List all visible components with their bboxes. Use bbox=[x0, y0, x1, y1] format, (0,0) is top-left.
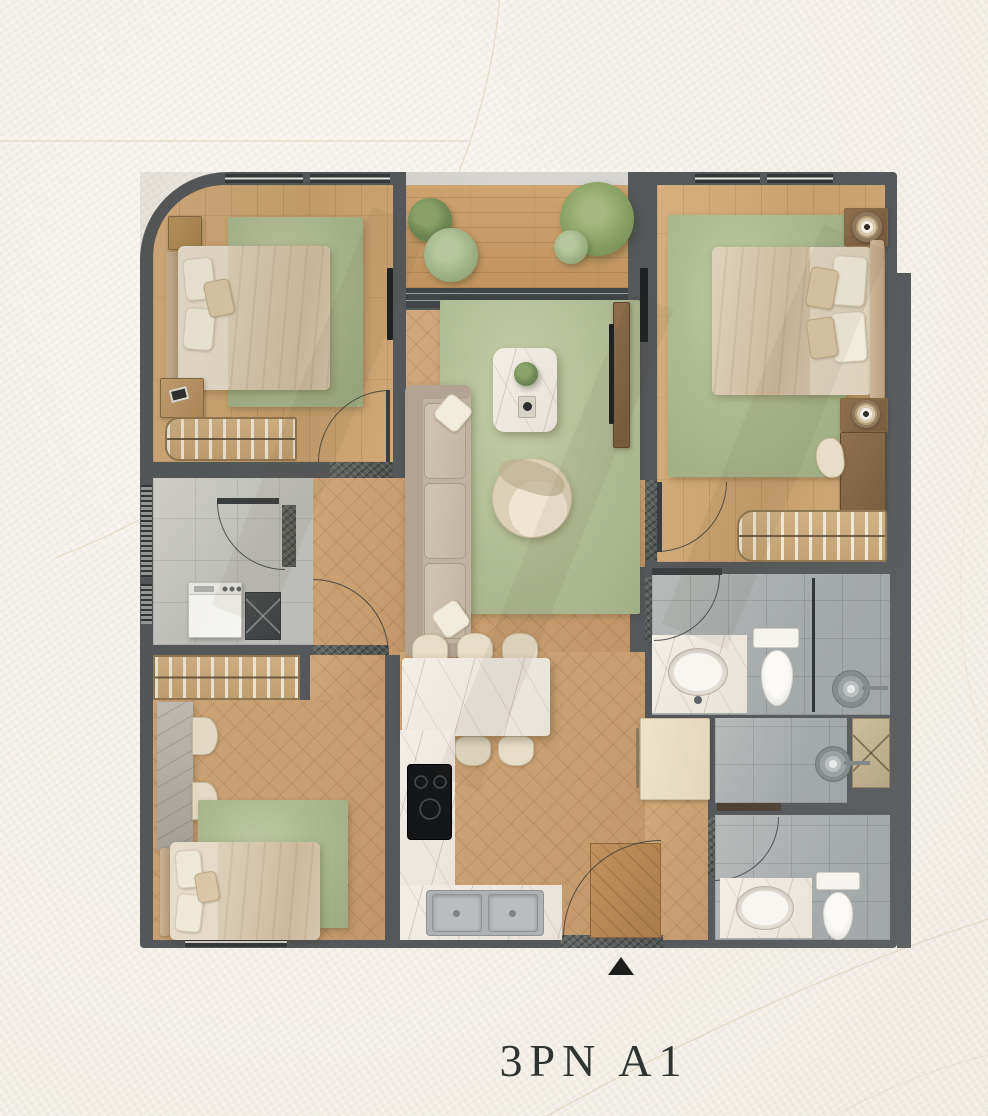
tray-item bbox=[523, 402, 532, 411]
wardrobe-master bbox=[737, 510, 887, 562]
cooktop bbox=[407, 764, 452, 840]
dining-table bbox=[402, 658, 550, 736]
bed-bedroom-2-headboard bbox=[166, 252, 178, 384]
window-bedroom-2-left bbox=[225, 174, 303, 183]
utility-duct-shaft bbox=[245, 592, 281, 640]
sofa-backrest bbox=[405, 385, 423, 657]
bed-bedroom-2-duvet bbox=[228, 246, 330, 390]
refrigerator bbox=[640, 718, 710, 800]
bed-master-headboard bbox=[870, 240, 884, 400]
threshold-bedroom-2 bbox=[330, 462, 393, 478]
tv-master-bedroom bbox=[640, 268, 648, 342]
coffee-table-plant bbox=[514, 362, 538, 386]
louver-window-utility-lower bbox=[141, 584, 152, 624]
threshold-bathroom-2 bbox=[708, 817, 715, 877]
threshold-master-bedroom bbox=[645, 480, 657, 560]
toilet-bathroom-2-tank bbox=[816, 872, 860, 890]
balcony-plant bbox=[424, 228, 478, 282]
dining-chair bbox=[498, 736, 534, 766]
shower-glass-partition bbox=[812, 578, 815, 712]
door-leaf-bathroom-2 bbox=[717, 803, 781, 811]
window-master-right bbox=[767, 174, 833, 183]
entry-direction-arrow-icon bbox=[608, 957, 634, 975]
sofa-armrest-top bbox=[405, 385, 471, 399]
lamp-master-top bbox=[852, 212, 882, 242]
lamp-master-bottom bbox=[852, 400, 880, 428]
threshold-bathroom-1 bbox=[645, 577, 652, 643]
desk-master bbox=[840, 432, 886, 516]
outer-wall-right-step bbox=[897, 273, 911, 948]
wardrobe-bedroom-3 bbox=[153, 655, 300, 700]
tv-living-room bbox=[609, 324, 614, 424]
bed-master-duvet bbox=[712, 247, 810, 395]
sink-bathroom-1 bbox=[668, 648, 728, 696]
faucet-bathroom-1 bbox=[694, 696, 702, 704]
nightstand-bedroom-2 bbox=[168, 216, 202, 250]
window-bedroom-2-right bbox=[310, 174, 390, 183]
tv-console-living bbox=[613, 302, 630, 448]
service-duct-shaft bbox=[852, 718, 890, 788]
sink-drain bbox=[509, 910, 516, 917]
toilet-bathroom-1-tank bbox=[753, 628, 799, 648]
tv-bedroom-2 bbox=[387, 268, 393, 340]
coffee-table bbox=[493, 348, 557, 432]
wardrobe-bedroom-2 bbox=[165, 417, 297, 461]
window-master-left bbox=[695, 174, 760, 183]
floor-plan bbox=[140, 172, 911, 948]
desk-bedroom-3 bbox=[157, 702, 193, 850]
bed-bedroom-3-headboard bbox=[160, 848, 170, 936]
shower-arm-bathroom-2 bbox=[844, 761, 870, 765]
sink-drain bbox=[453, 910, 460, 917]
washer-detergent-slot bbox=[194, 586, 214, 592]
balcony-plant bbox=[554, 230, 588, 264]
louver-window-utility-upper bbox=[141, 485, 152, 577]
sofa-cushion bbox=[424, 483, 466, 559]
floor-bedroom-3-upper bbox=[310, 655, 385, 700]
bed-bedroom-3-duvet bbox=[218, 842, 320, 940]
unit-title: 3PN A1 bbox=[200, 1034, 988, 1087]
door-leaf-bathroom-1 bbox=[652, 568, 722, 575]
washing-machine bbox=[188, 582, 242, 638]
desk-chair bbox=[192, 717, 218, 755]
sink-bathroom-2 bbox=[736, 886, 794, 930]
refrigerator-handle bbox=[636, 728, 639, 788]
shower-arm-bathroom-1 bbox=[862, 686, 888, 690]
dining-chair bbox=[455, 736, 491, 766]
accent-pillow bbox=[805, 316, 838, 360]
